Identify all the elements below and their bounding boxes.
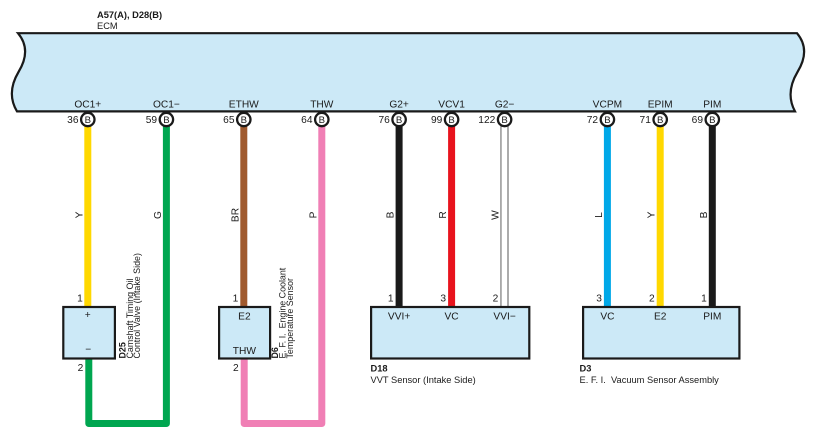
svg-text:L: L (594, 212, 605, 218)
svg-text:E2: E2 (654, 312, 667, 323)
svg-text:VC: VC (600, 312, 614, 323)
svg-text:W: W (490, 210, 501, 220)
svg-text:71: 71 (640, 115, 652, 126)
svg-text:59: 59 (146, 115, 158, 126)
svg-text:69: 69 (692, 115, 704, 126)
svg-text:B: B (699, 211, 710, 218)
svg-text:2: 2 (78, 363, 84, 374)
svg-text:1: 1 (388, 294, 394, 305)
svg-text:B: B (657, 115, 663, 126)
svg-text:B: B (85, 115, 91, 126)
svg-text:B: B (709, 115, 715, 126)
svg-text:G2+: G2+ (389, 100, 409, 111)
svg-text:G2−: G2− (495, 100, 515, 111)
svg-text:D3: D3 (580, 364, 592, 374)
svg-text:THW: THW (310, 100, 334, 111)
svg-text:BR: BR (230, 208, 241, 222)
svg-text:2: 2 (649, 294, 655, 305)
svg-text:2: 2 (233, 363, 239, 374)
svg-text:Control Valve (Intake Side): Control Valve (Intake Side) (132, 253, 142, 358)
svg-text:2: 2 (493, 294, 499, 305)
svg-text:1: 1 (701, 294, 707, 305)
svg-text:G: G (153, 211, 164, 219)
svg-text:B: B (241, 115, 247, 126)
svg-text:EPIM: EPIM (648, 100, 673, 111)
svg-text:D18: D18 (371, 364, 388, 374)
svg-text:VVI−: VVI− (493, 312, 515, 323)
svg-text:B: B (319, 115, 325, 126)
svg-text:65: 65 (223, 115, 235, 126)
svg-text:B: B (396, 115, 402, 126)
svg-text:VC: VC (445, 312, 459, 323)
svg-text:THW: THW (233, 346, 257, 357)
svg-text:76: 76 (378, 115, 390, 126)
svg-text:VVI+: VVI+ (388, 312, 410, 323)
svg-text:3: 3 (440, 294, 446, 305)
svg-text:Y: Y (647, 211, 658, 218)
svg-text:1: 1 (77, 294, 83, 305)
svg-text:E. F. I. Vacuum Sensor Assemb: E. F. I. Vacuum Sensor Assembly (580, 375, 720, 385)
svg-text:ETHW: ETHW (229, 100, 259, 111)
svg-text:VCV1: VCV1 (438, 100, 465, 111)
svg-text:B: B (448, 115, 454, 126)
svg-text:122: 122 (478, 115, 495, 126)
svg-text:36: 36 (67, 115, 79, 126)
svg-text:ECM: ECM (97, 21, 118, 31)
svg-text:Temperature Sensor: Temperature Sensor (285, 278, 295, 358)
svg-text:B: B (604, 115, 610, 126)
svg-text:OC1+: OC1+ (74, 100, 101, 111)
svg-text:A57(A), D28(B): A57(A), D28(B) (97, 10, 162, 20)
svg-text:Y: Y (74, 211, 85, 218)
svg-text:B: B (501, 115, 507, 126)
svg-text:VVT Sensor (Intake Side): VVT Sensor (Intake Side) (371, 375, 476, 385)
svg-text:3: 3 (596, 294, 602, 305)
svg-text:−: − (85, 345, 91, 356)
svg-text:R: R (438, 211, 449, 218)
svg-text:OC1−: OC1− (153, 100, 180, 111)
svg-text:E2: E2 (238, 312, 251, 323)
svg-text:+: + (85, 310, 91, 321)
svg-text:1: 1 (233, 294, 239, 305)
svg-text:PIM: PIM (703, 312, 721, 323)
svg-text:99: 99 (431, 115, 443, 126)
svg-text:64: 64 (301, 115, 313, 126)
svg-text:72: 72 (587, 115, 599, 126)
svg-text:VCPM: VCPM (593, 100, 622, 111)
svg-text:P: P (308, 211, 319, 218)
svg-text:PIM: PIM (703, 100, 721, 111)
svg-text:B: B (386, 211, 397, 218)
svg-text:B: B (163, 115, 169, 126)
